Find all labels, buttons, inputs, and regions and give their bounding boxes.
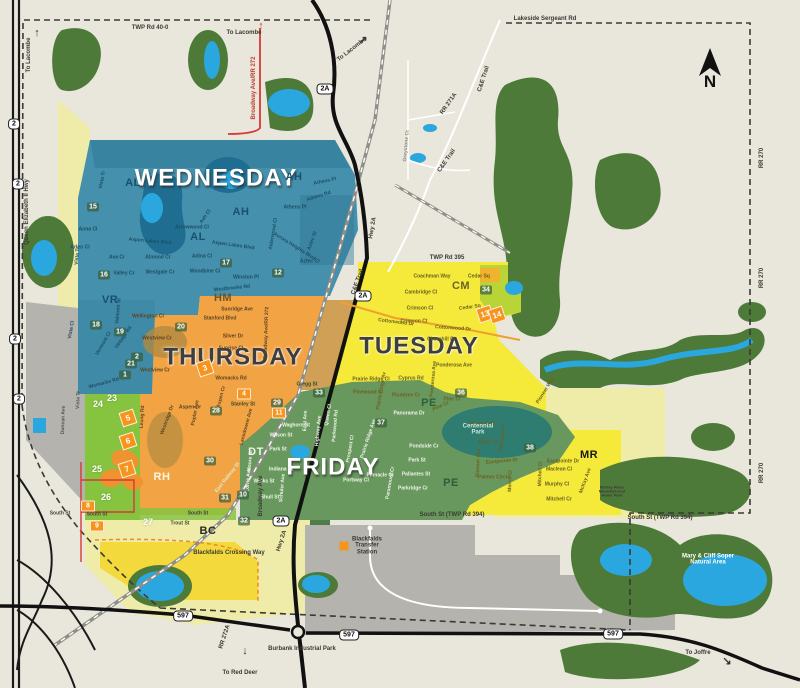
area-marker-plain: 26 (101, 492, 111, 502)
street-label: Westgate Cr (145, 270, 174, 275)
area-marker-green: 30 (204, 457, 216, 466)
poi-label: Burbank Industrial Park (268, 646, 336, 652)
street-label: Vista Tr (75, 247, 82, 265)
street-label: Pallantes St (402, 472, 430, 477)
street-label: Pioneer Ave (476, 449, 482, 478)
site-marker-tilted: 5 (119, 409, 138, 428)
street-label: Mitchell Cl (538, 461, 544, 486)
street-label: Eastpointe Dr (547, 459, 580, 464)
street-label: Valmont St (115, 298, 122, 324)
street-label: Parkwood Rd (332, 410, 340, 442)
street-label: East Railway St (215, 462, 242, 494)
highway-shield: 2 (9, 334, 21, 345)
street-label: Woodbine Cl (190, 269, 220, 274)
street-label: Parkridge Cr (398, 486, 428, 491)
area-code-label: AL (190, 232, 206, 244)
zone-title: WEDNESDAY (135, 165, 298, 190)
road-label: TWP Rd 395 (430, 255, 465, 261)
road-label: RR 270 (759, 148, 765, 168)
highway-shield: 2A (317, 84, 334, 95)
highway-shield: 2 (8, 119, 20, 130)
highway-shield: 2 (13, 394, 25, 405)
road-label: C&E Trail (437, 148, 457, 173)
street-label: Stanford Blvd (204, 316, 237, 321)
street-label: Ponderosa Ave (430, 361, 438, 397)
area-marker-green: 15 (87, 203, 99, 212)
street-label: Trout St (171, 521, 190, 526)
area-code-label: MR (580, 450, 598, 462)
area-marker-green: 33 (313, 389, 325, 398)
street-label: McKay Ave (579, 468, 593, 495)
road-label: Hwy 2A (368, 217, 378, 239)
street-label: Aspen Lakes Blvd (211, 240, 254, 251)
street-label: Westridge Dr (160, 405, 176, 436)
area-marker-green: 19 (114, 328, 126, 337)
street-label: Westview Cr (140, 368, 170, 373)
street-label: Vista Cl (68, 321, 76, 340)
street-label: Crimson Cl (407, 306, 434, 311)
road-label: TWP Rd 40-0 (132, 25, 169, 31)
area-code-label: AH (233, 207, 250, 219)
area-marker-plain: 27 (143, 517, 153, 527)
street-label: Portway Cl (343, 478, 369, 483)
street-label: Piper Cl (479, 440, 498, 445)
street-label: Maclean Cl (546, 467, 572, 472)
area-marker-green: 34 (480, 286, 492, 295)
poi-label: McKay Place Manufactured Home Park (599, 486, 625, 499)
street-label: Eastpointe Dr (486, 458, 519, 466)
road-label: RR 271A (439, 92, 458, 116)
street-label: Plumtree Cr (392, 393, 420, 398)
area-marker-green: 36 (455, 389, 467, 398)
direction-arrow-icon: ↗ (358, 34, 367, 47)
road-label: Lakeside Sergeant Rd (514, 16, 577, 22)
street-label: South St (87, 512, 108, 517)
street-label: Paramount Cr (386, 466, 397, 499)
highway-shield: 2A (355, 291, 372, 302)
street-label: Valley Cr (113, 271, 134, 276)
area-marker-green: 32 (238, 517, 250, 526)
road-label: RR 270 (759, 463, 765, 483)
north-indicator: N (693, 48, 727, 100)
area-marker-green: 18 (90, 321, 102, 330)
area-marker-green: 31 (219, 494, 231, 503)
direction-label: To Lacombe (227, 30, 262, 36)
street-label: Coachman Way (413, 274, 450, 279)
street-label: Athens Pl (283, 205, 306, 210)
street-label: Murphy Cl (545, 482, 569, 487)
site-marker-orange: 8 (81, 501, 95, 512)
road-label: Queen Elizabeth II Hwy (24, 179, 30, 245)
area-marker-plain: 25 (92, 464, 102, 474)
street-label: Sunrise Cl (219, 346, 244, 351)
area-code-label: HM (214, 293, 232, 305)
street-label: Schuler Ave (279, 474, 287, 503)
street-label: Cyprus Rd (398, 376, 423, 381)
road-label: Hwy 2A (276, 530, 289, 553)
road-label: Broadway Ave/RR 272 (251, 57, 257, 120)
site-marker-tilted: 6 (119, 432, 138, 451)
street-label: Pioneer Way (536, 377, 556, 405)
area-marker-green: 10 (237, 491, 249, 500)
street-label: Duncan Ave (61, 406, 67, 435)
area-marker-green: 16 (98, 271, 110, 280)
area-marker-green: 21 (125, 360, 137, 369)
road-label: Blackfalds Crossing Way (193, 550, 264, 556)
direction-label: To Lacombe (26, 38, 32, 73)
street-label: Pondside Cr (409, 444, 438, 449)
street-label: Aspen Lakes Blvd (128, 238, 171, 247)
street-label: Ash Cl (199, 209, 212, 225)
area-marker-green: 20 (175, 323, 187, 332)
street-label: Highway Ave (315, 415, 323, 446)
area-code-label: AH (286, 172, 303, 184)
site-marker-tilted: 7 (118, 460, 137, 479)
highway-shield: 2A (273, 516, 290, 527)
road-label: South St (TWP Rd 394) (420, 512, 485, 518)
street-label: Cedar Sq (468, 274, 490, 279)
street-label: Westbrooke Rd (214, 284, 251, 293)
street-label: Lansdowne Ave (240, 408, 255, 446)
street-label: Wilson St (270, 433, 293, 438)
street-label: Silver Dr (223, 334, 244, 339)
street-label: Moore St (247, 450, 254, 472)
street-label: Almond Cr (145, 255, 171, 260)
street-label: Athens Rd (306, 191, 331, 204)
site-marker-orange: 11 (272, 408, 286, 419)
direction-label: To Red Deer (223, 670, 258, 676)
highway-shield: 597 (173, 611, 193, 622)
street-label: Aztec St (307, 231, 319, 251)
street-label: Adina Cl (192, 254, 212, 259)
direction-arrow-icon: ↑ (258, 20, 264, 32)
road-label: RR 272A (218, 624, 232, 649)
street-label: Anna Cl (79, 227, 98, 232)
site-marker-tilted: 14 (488, 306, 507, 325)
direction-label: To Joffre (685, 650, 710, 656)
collection-schedule-map: WEDNESDAYTHURSDAYTUESDAYFRIDAYALALAHAHVR… (0, 0, 800, 688)
poi-label: Blackfalds Transfer Station (352, 537, 382, 556)
direction-arrow-icon: ↓ (242, 645, 248, 657)
area-marker-green: 17 (220, 259, 232, 268)
street-label: South St (50, 511, 71, 516)
street-label: Aspen Cr (217, 386, 228, 409)
area-marker-plain: 24 (93, 399, 103, 409)
area-code-label: PE (443, 478, 459, 490)
street-label: Athens Pl (313, 177, 337, 187)
site-marker-orange: 9 (90, 521, 104, 532)
north-label: N (693, 72, 727, 92)
area-marker-plain: 23 (107, 393, 117, 403)
zone-title: TUESDAY (359, 333, 478, 358)
street-label: Westview Cr (142, 336, 172, 341)
site-marker-orange: 4 (237, 389, 251, 400)
area-code-label: BC (200, 526, 217, 538)
road-label: C&E Trail (477, 65, 491, 92)
direction-arrow-icon: ↘ (722, 655, 731, 668)
highway-shield: 2 (12, 179, 24, 190)
road-label: RR 270 (759, 268, 765, 288)
street-label: Parkway Dr (499, 424, 507, 452)
street-label: Womacks Rd (88, 377, 120, 390)
area-code-label: AL (125, 178, 141, 190)
highway-shield: 597 (339, 630, 359, 641)
area-marker-green: 29 (271, 399, 283, 408)
area-marker-green: 28 (210, 407, 222, 416)
street-label: Palmer Circle (478, 475, 510, 480)
area-marker-green: 38 (524, 444, 536, 453)
street-label: Morris Cl (508, 470, 514, 492)
street-label: Gregg St (296, 382, 317, 387)
area-code-label: CM (452, 281, 470, 293)
street-label: Womacks Rd (215, 376, 246, 381)
road-label: Broadway Ave (258, 476, 264, 517)
street-label: Greystone Ct (403, 130, 411, 162)
street-label: Stanley St (231, 402, 255, 407)
map-labels-layer: WEDNESDAYTHURSDAYTUESDAYFRIDAYALALAHAHVR… (0, 0, 800, 688)
street-label: Winston Pl (233, 275, 259, 280)
area-marker-green: 37 (375, 419, 387, 428)
street-label: Vista Tr (76, 391, 82, 409)
area-code-label: RH (154, 472, 171, 484)
area-marker-green: 12 (272, 269, 284, 278)
poi-label: Centennial Park (463, 424, 494, 437)
street-label: Cambridge Cl (405, 290, 438, 295)
direction-arrow-icon: ↑ (34, 27, 40, 39)
highway-shield: 597 (603, 629, 623, 640)
road-label: South St (TWP Rd 394) (628, 515, 693, 521)
street-label: Ponderosa Ave (436, 363, 472, 368)
street-label: Vista Tr (99, 171, 107, 190)
area-marker-green: 1 (119, 371, 131, 380)
street-label: Ava Cr (109, 255, 125, 260)
street-label: South St (188, 511, 209, 516)
street-label: Churchill Pl (427, 337, 455, 342)
poi-label: Mary & Cliff Soper Natural Area (682, 554, 734, 567)
street-label: Indiana St (269, 467, 293, 472)
street-label: Park St (408, 458, 425, 463)
street-label: Wellington Cl (132, 314, 164, 319)
street-label: Park St (269, 447, 286, 452)
street-label: Vermont Cl (95, 331, 113, 356)
street-label: East Ave (303, 411, 309, 432)
street-label: Panorama Dr (393, 411, 424, 416)
transfer-station-icon (340, 542, 349, 551)
street-label: Leung Rd (140, 405, 146, 428)
street-label: Sunridge Ave (221, 307, 253, 312)
street-label: Mitchell Cr (546, 497, 572, 502)
street-label: Arrowwood Cl (175, 225, 209, 230)
